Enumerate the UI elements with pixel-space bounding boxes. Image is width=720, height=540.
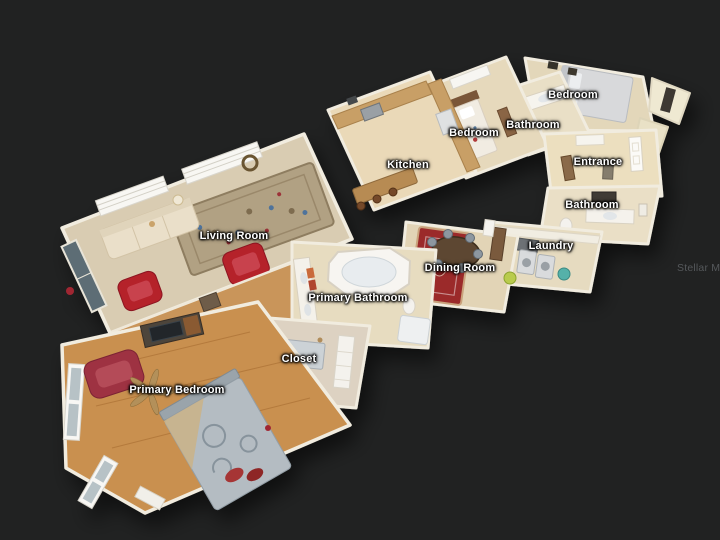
- room-label-living-room: Living Room: [200, 230, 269, 242]
- red-accent-item: [66, 287, 74, 295]
- room-label-bedroom-2: Bedroom: [548, 89, 598, 101]
- tub-basin: [342, 257, 396, 287]
- dining-chair: [428, 238, 437, 247]
- room-label-closet: Closet: [282, 353, 317, 365]
- bar-stool: [357, 202, 365, 210]
- front-door: [629, 137, 643, 172]
- floorplan-3d-dollhouse-view: Living Room Kitchen Bedroom Bathroom Bed…: [0, 0, 720, 540]
- room-label-bathroom-2: Bathroom: [565, 199, 619, 211]
- wall-art-frame: [483, 219, 495, 236]
- clothes-item: [318, 338, 323, 343]
- room-label-primary-bedroom: Primary Bedroom: [129, 384, 224, 396]
- dining-chair: [466, 234, 475, 243]
- bar-stool: [373, 195, 381, 203]
- closet-door: [576, 135, 604, 146]
- room-label-primary-bathroom: Primary Bathroom: [308, 292, 407, 304]
- green-plant: [504, 272, 516, 284]
- room-label-laundry: Laundry: [529, 240, 574, 252]
- room-label-bathroom-1: Bathroom: [506, 119, 560, 131]
- room-label-kitchen: Kitchen: [387, 159, 429, 171]
- room-label-dining-room: Dining Room: [425, 262, 496, 274]
- red-accent-item: [265, 425, 271, 431]
- stellar-mls-watermark: Stellar MLS: [677, 262, 720, 274]
- room-label-bedroom-1: Bedroom: [449, 127, 499, 139]
- dining-chair: [444, 230, 453, 239]
- floorplan-render: [0, 0, 720, 540]
- shower: [397, 315, 430, 345]
- wall-art-frame: [639, 204, 647, 216]
- table-lamp: [173, 195, 183, 205]
- room-label-entrance: Entrance: [574, 156, 623, 168]
- bar-stool: [389, 188, 397, 196]
- laundry-basket: [558, 268, 570, 280]
- dining-chair: [474, 250, 483, 259]
- figurine: [149, 221, 155, 227]
